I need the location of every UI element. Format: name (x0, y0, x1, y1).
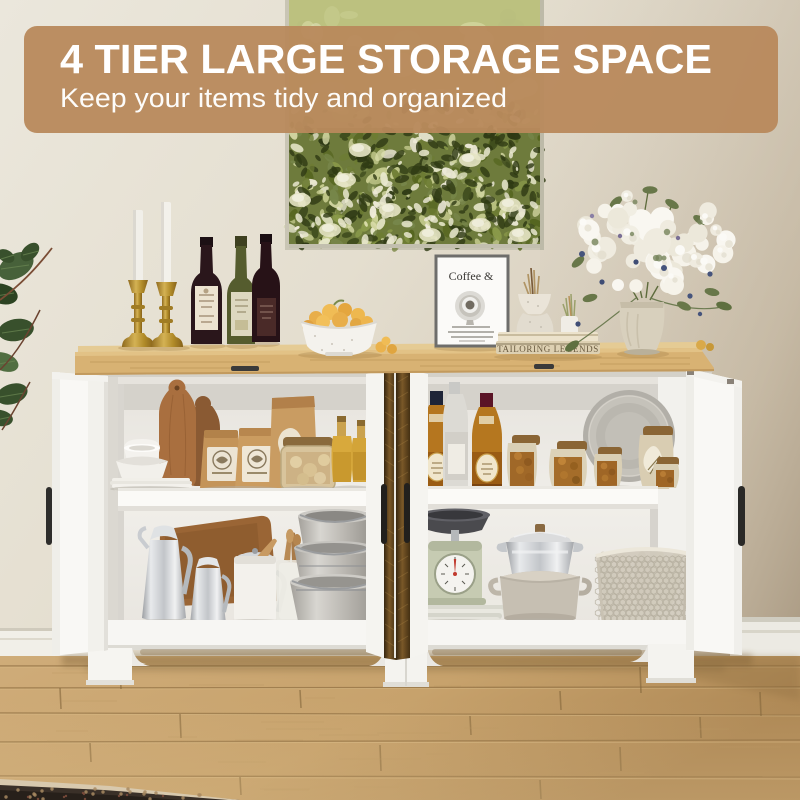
svg-text:Keep your items tidy and organ: Keep your items tidy and organized (60, 83, 507, 113)
svg-text:4 TIER LARGE STORAGE SPACE: 4 TIER LARGE STORAGE SPACE (60, 36, 712, 82)
svg-text:TAILORING LEGENDS: TAILORING LEGENDS (497, 344, 599, 354)
svg-text:Coffee &: Coffee & (449, 269, 494, 283)
